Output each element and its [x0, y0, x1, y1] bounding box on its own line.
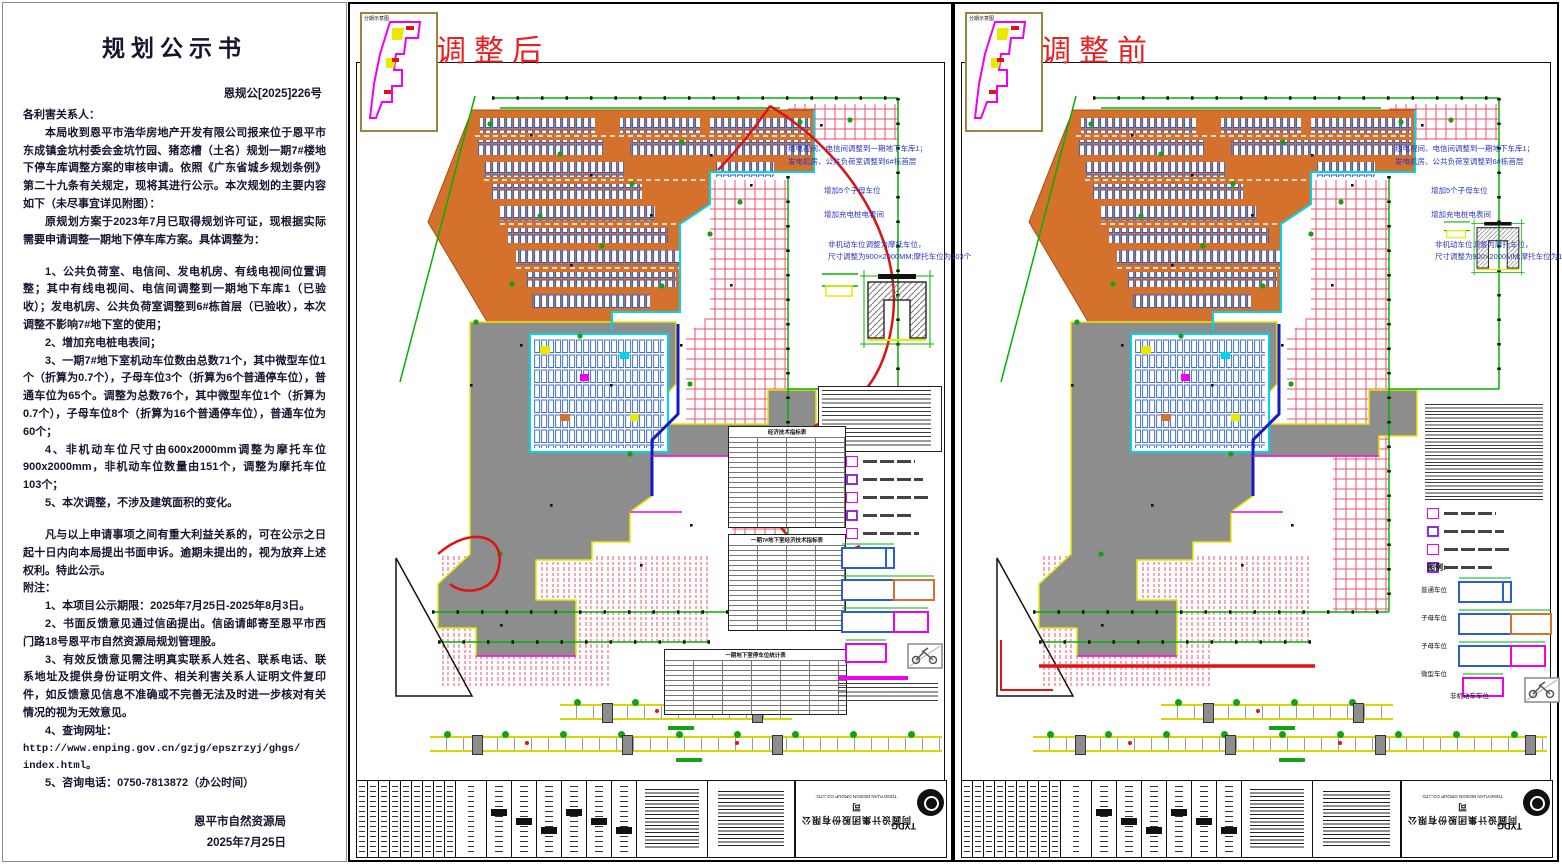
- legend-caption: [1444, 530, 1504, 534]
- salutation: 各利害关系人：: [23, 107, 326, 125]
- panel-title-after: 调整后: [436, 26, 550, 70]
- paragraph-1: 本局收到恩平市浩华房地产开发有限公司报来位于恩平市东成镇金坑村委会金坑竹园、猪恋…: [23, 125, 326, 214]
- design-firm-block: 同圆设计集团股份有限公司 TONGYUAN DESIGN GROUP CO.,L…: [1401, 781, 1552, 857]
- legend-caption: [1444, 566, 1492, 570]
- annotation-line: 线电视间、电信间调整到一期地下车库1；: [1395, 144, 1534, 155]
- legend-swatch: [846, 492, 858, 503]
- legend-caption: [1444, 512, 1496, 516]
- legend-swatch: [846, 474, 858, 485]
- hatch-legend-after: [846, 456, 929, 546]
- document-title: 规划公示书: [23, 29, 326, 63]
- section-label: [1279, 758, 1305, 762]
- section-strip-long: [1033, 736, 1547, 752]
- legend-caption: [863, 460, 915, 464]
- panel-title-before: 调整前: [1041, 26, 1155, 70]
- section-label: [668, 726, 694, 730]
- legend-swatch: [1427, 544, 1439, 555]
- design-notes-lines: [1425, 404, 1543, 500]
- stall-label-standard: 普通车位: [1421, 584, 1447, 594]
- highlight-line: [838, 676, 908, 680]
- stall-label-moto: 非机动车车位: [1450, 690, 1489, 700]
- detail-svg: [1441, 209, 1529, 278]
- note-5: 5、咨询电话：0750-7813872（办公时间）: [23, 775, 326, 793]
- phasing-inset-map: 分期示意图: [360, 12, 438, 132]
- title-block-after: 同圆设计集团股份有限公司 TONGYUAN DESIGN GROUP CO.,L…: [356, 780, 947, 858]
- design-firm-name-en: TONGYUAN DESIGN GROUP CO.,LTD.: [1406, 794, 1518, 799]
- annotation-line: 非机动车位调整为摩托车位，: [828, 240, 926, 251]
- design-firm-logo-text: TYDG: [1497, 821, 1522, 831]
- design-firm-logo-icon: [1523, 789, 1550, 816]
- section-strip-short: [1161, 704, 1393, 720]
- inset-label: 分期示意图: [364, 15, 389, 22]
- drawing-panel-after: 分期示意图 调整后 线电视间、电信间调整到一期地下车库1； 发电机房、: [348, 2, 953, 862]
- legend-swatch: [846, 456, 858, 467]
- stall-label-tandem: 子母车位: [1421, 612, 1447, 622]
- legend-title: 图例:: [1427, 562, 1446, 573]
- annotation-line: 线电视间、电信间调整到一期地下车库1；: [788, 144, 927, 155]
- inset-label: 分期示意图: [969, 15, 994, 22]
- construction-detail-before: [1441, 209, 1529, 282]
- appeal-paragraph: 凡与以上申请事项之间有重大利益关系的，可在公示之日起十日内向本局提出书面申诉。逾…: [23, 527, 326, 580]
- note-2: 2、书面反馈意见通过信函提出。信函请邮寄至恩平市西门路18号恩平市自然资源局规划…: [23, 616, 326, 652]
- inset-svg: [362, 14, 432, 126]
- legend-caption: [863, 496, 929, 500]
- note-lines: [838, 683, 938, 701]
- indicator-table-1: 经济技术指标表: [728, 426, 846, 528]
- detail-svg: [818, 256, 940, 352]
- inset-map-shape: [362, 113, 432, 130]
- phasing-inset-map: 分期示意图: [965, 12, 1043, 132]
- stalls-svg: [836, 540, 948, 672]
- item-3: 3、一期7#地下室机动车位数由总数71个，其中微型车位1个（折算为0.7个），子…: [23, 353, 326, 442]
- item-2: 2、增加充电桩电表间；: [23, 335, 326, 353]
- table-grid: [729, 437, 845, 527]
- section-label: [1269, 726, 1295, 730]
- drawing-panel-before: 分期示意图 调整前 线电视间、电信间调整到一期地下车库1； 发电机房、公共负荷室: [953, 2, 1559, 862]
- signature-agency: 恩平市自然资源局: [23, 812, 286, 833]
- inset-svg: [967, 14, 1037, 126]
- planning-notice-document: 规划公示书 恩规公[2025]226号 各利害关系人： 本局收到恩平市浩华房地产…: [2, 2, 347, 862]
- note-1: 1、本项目公示期限：2025年7月25日-2025年8月3日。: [23, 598, 326, 616]
- legend-swatch: [1427, 526, 1439, 537]
- stall-type-diagrams-after: [836, 540, 948, 677]
- item-1: 1、公共负荷室、电信间、发电机房、有线电视间位置调整；其中有线电视间、电信间调整…: [23, 264, 326, 335]
- inset-map-shape: [967, 113, 1037, 130]
- design-firm-logo-icon: [917, 789, 944, 816]
- design-firm-name-en: TONGYUAN DESIGN GROUP CO.,LTD.: [800, 794, 912, 799]
- site-plan-before: [981, 84, 1511, 719]
- notes-label: 附注：: [23, 580, 326, 598]
- query-url-line2: index.html。: [23, 758, 326, 775]
- annotation-line: 发电机房、公共负荷室调整到6#栋首层: [1395, 157, 1523, 168]
- item-4: 4、非机动车位尺寸由600x2000mm调整为摩托车位900x2000mm，非机…: [23, 442, 326, 495]
- legend-caption: [1444, 548, 1510, 552]
- design-firm-block: 同圆设计集团股份有限公司 TONGYUAN DESIGN GROUP CO.,L…: [795, 781, 946, 857]
- signature-date: 2025年7月25日: [23, 833, 286, 854]
- query-url-line1: http://www.enping.gov.cn/gzjg/epszrzyj/g…: [23, 741, 326, 758]
- table-grid: [665, 660, 846, 714]
- stall-note-after: [838, 676, 938, 701]
- note-4: 4、查询网址：: [23, 723, 326, 741]
- legend-swatch: [1427, 508, 1439, 519]
- annotation-line: 增加充电桩电表间: [824, 210, 884, 221]
- stall-label-tandem2: 子母车位: [1421, 640, 1447, 650]
- note-3: 3、有效反馈意见需注明真实联系人姓名、联系电话、联系地址及提供身份证明文件、相关…: [23, 652, 326, 723]
- stalls-svg: [1453, 574, 1562, 706]
- document-number: 恩规公[2025]226号: [23, 85, 322, 101]
- parking-statistics-table: 一期地下室停车位统计表: [664, 649, 847, 715]
- section-strip-long: [430, 736, 942, 752]
- legend-caption: [863, 478, 923, 482]
- legend-caption: [863, 532, 919, 536]
- legend-caption: [863, 514, 911, 518]
- legend-swatch: [846, 510, 858, 521]
- indicator-table-2: 一期7#地下室经济技术指标表: [728, 534, 846, 631]
- design-firm-logo-text: TYDG: [891, 821, 916, 831]
- paragraph-2: 原规划方案于2023年7月已取得规划许可证，现根据实际需要申请调整一期地下停车库…: [23, 214, 326, 250]
- annotation-line: 增加5个子母车位: [824, 186, 881, 197]
- table-grid: [729, 545, 845, 630]
- annotation-line: 增加5个子母车位: [1431, 186, 1488, 197]
- legend-swatch: [846, 528, 858, 539]
- item-5: 5、本次调整，不涉及建筑面积的变化。: [23, 495, 326, 513]
- stall-label-micro: 微型车位: [1421, 668, 1447, 678]
- title-block-before: 同圆设计集团股份有限公司 TONGYUAN DESIGN GROUP CO.,L…: [961, 780, 1553, 858]
- construction-detail-after: [818, 256, 940, 357]
- annotation-line: 发电机房、公共负荷室调整到6#栋首层: [788, 157, 916, 168]
- section-label: [676, 758, 702, 762]
